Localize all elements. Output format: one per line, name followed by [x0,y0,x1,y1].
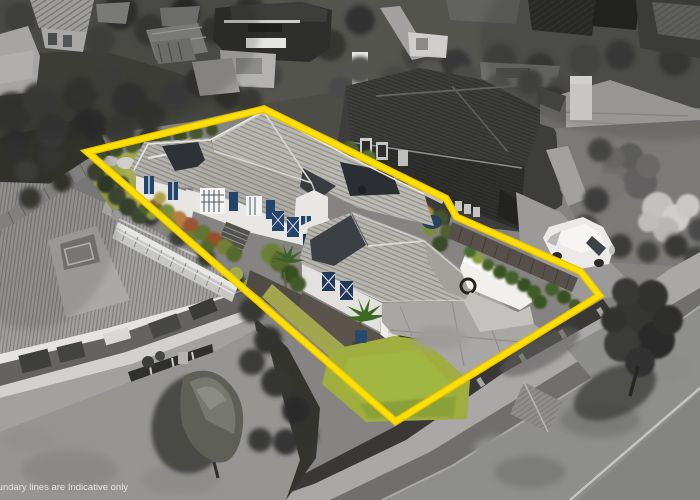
svg-text:Boundary lines are Indicative: Boundary lines are Indicative only [0,482,128,493]
